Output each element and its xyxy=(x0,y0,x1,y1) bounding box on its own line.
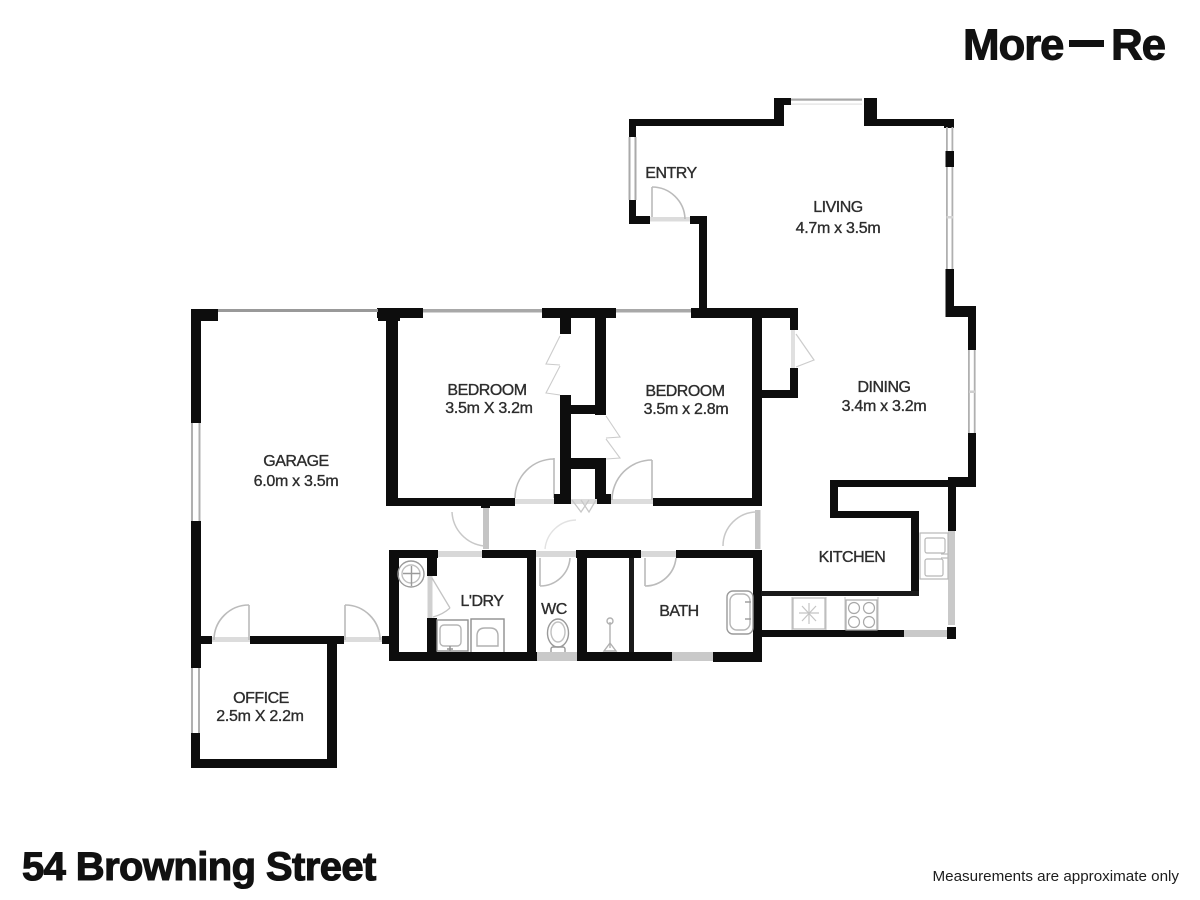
svg-text:3.4m x 3.2m: 3.4m x 3.2m xyxy=(842,398,927,415)
svg-text:LIVING: LIVING xyxy=(813,199,863,216)
svg-text:BEDROOM: BEDROOM xyxy=(447,382,526,399)
svg-text:KITCHEN: KITCHEN xyxy=(819,549,886,566)
svg-text:6.0m x 3.5m: 6.0m x 3.5m xyxy=(254,473,339,490)
svg-text:L'DRY: L'DRY xyxy=(461,593,505,610)
svg-text:54 Browning Street: 54 Browning Street xyxy=(22,845,376,889)
svg-text:BATH: BATH xyxy=(659,603,698,620)
svg-text:4.7m x 3.5m: 4.7m x 3.5m xyxy=(796,220,881,237)
svg-text:DINING: DINING xyxy=(858,379,911,396)
svg-text:Re: Re xyxy=(1111,21,1165,70)
svg-text:Measurements are approximate o: Measurements are approximate only xyxy=(933,868,1180,885)
svg-text:ENTRY: ENTRY xyxy=(645,165,697,182)
svg-text:2.5m X 2.2m: 2.5m X 2.2m xyxy=(216,708,303,725)
svg-text:BEDROOM: BEDROOM xyxy=(645,383,724,400)
svg-text:WC: WC xyxy=(541,601,567,618)
svg-text:OFFICE: OFFICE xyxy=(233,690,289,707)
svg-text:3.5m X 3.2m: 3.5m X 3.2m xyxy=(445,400,532,417)
svg-text:GARAGE: GARAGE xyxy=(263,453,328,470)
svg-text:3.5m x 2.8m: 3.5m x 2.8m xyxy=(644,401,729,418)
svg-text:More: More xyxy=(963,21,1063,70)
